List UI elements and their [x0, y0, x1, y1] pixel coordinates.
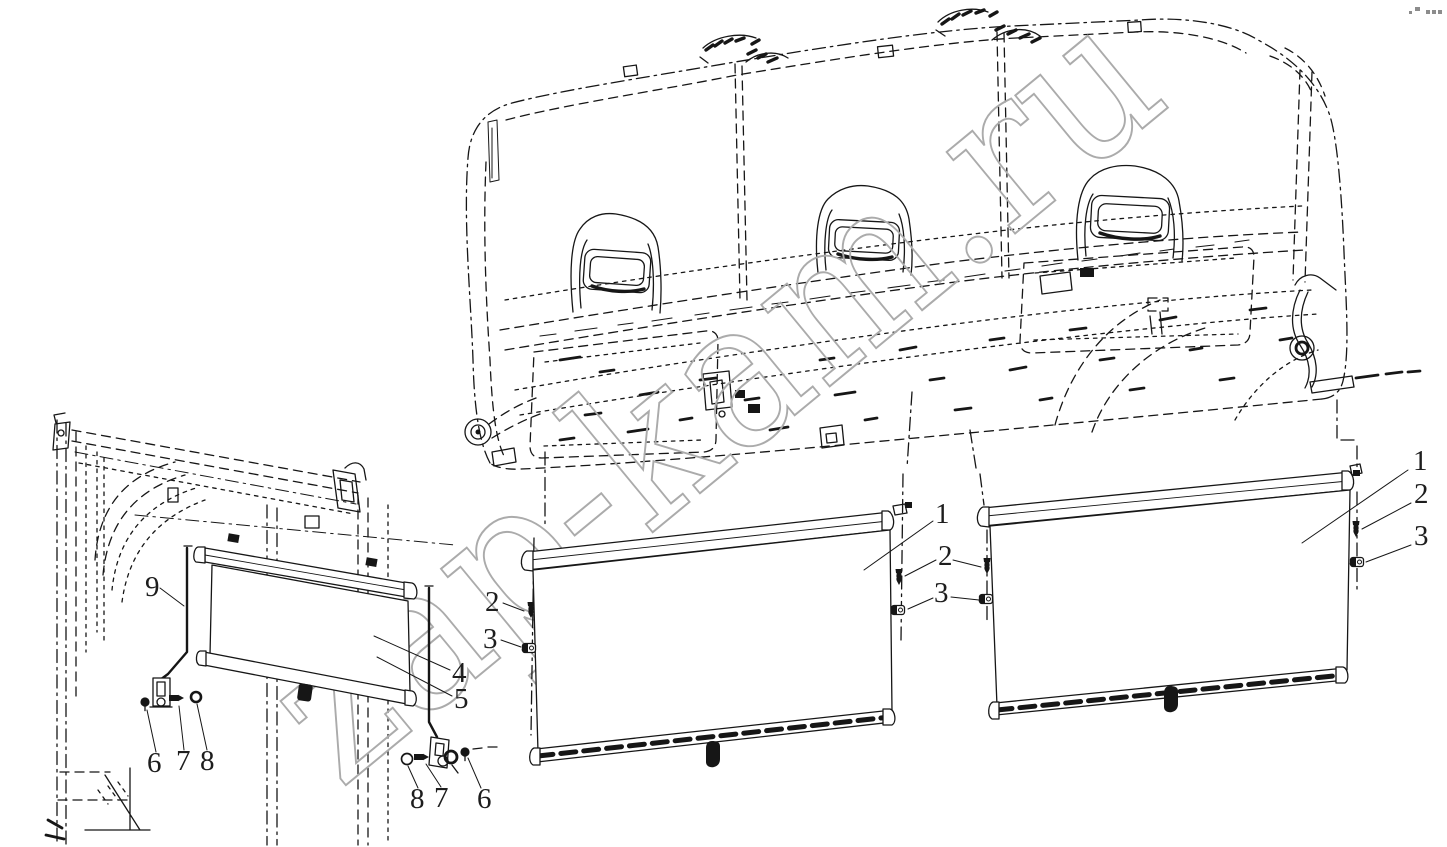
center-blind-pull-tab: [706, 741, 720, 767]
roof-hinge-left: [700, 35, 788, 63]
nut-8-icon: [191, 692, 201, 702]
exploded-parts-diagram: zap-kam.ru: [0, 0, 1447, 847]
right-roller-blind: [970, 400, 1364, 719]
window-latch-right: [1040, 268, 1168, 334]
callout-8: 8: [200, 745, 215, 777]
callout-9: 9: [145, 571, 160, 603]
callout-1: 1: [1413, 445, 1428, 477]
side-blind-left-bracket: [150, 678, 172, 707]
callout-6: 6: [147, 747, 162, 779]
clip-3-icon: [891, 606, 905, 615]
callout-6: 6: [477, 783, 492, 815]
callout-3: 3: [934, 577, 949, 609]
callout-2: 2: [1414, 478, 1429, 510]
clip-3-icon: [979, 595, 993, 604]
screw-2-icon: [1353, 521, 1360, 537]
corner-marks: [1409, 5, 1443, 17]
side-blind-pull-tab: [297, 683, 313, 702]
screw-7-icon: [169, 695, 184, 701]
screw-2-icon: [984, 558, 991, 574]
seatbelt-guide-bracket: [1290, 275, 1420, 393]
callout-7: 7: [434, 782, 449, 814]
callout-2: 2: [938, 540, 953, 572]
parts-diagram-page: zap-kam.ru: [0, 0, 1447, 847]
guide-rod-left: [160, 548, 187, 680]
washer-8-icon: [402, 754, 413, 765]
clip-3-icon: [1350, 558, 1364, 567]
ball-stud-6-icon: [140, 697, 149, 710]
callout-1: 1: [935, 498, 950, 530]
callout-8: 8: [410, 783, 425, 815]
callout-3: 3: [1414, 520, 1429, 552]
right-blind-pull-tab: [1164, 686, 1178, 712]
clip-3-icon: [522, 644, 536, 653]
callout-3: 3: [483, 623, 498, 655]
callout-5: 5: [454, 683, 469, 715]
callout-7: 7: [176, 745, 191, 777]
callout-2: 2: [485, 586, 500, 618]
